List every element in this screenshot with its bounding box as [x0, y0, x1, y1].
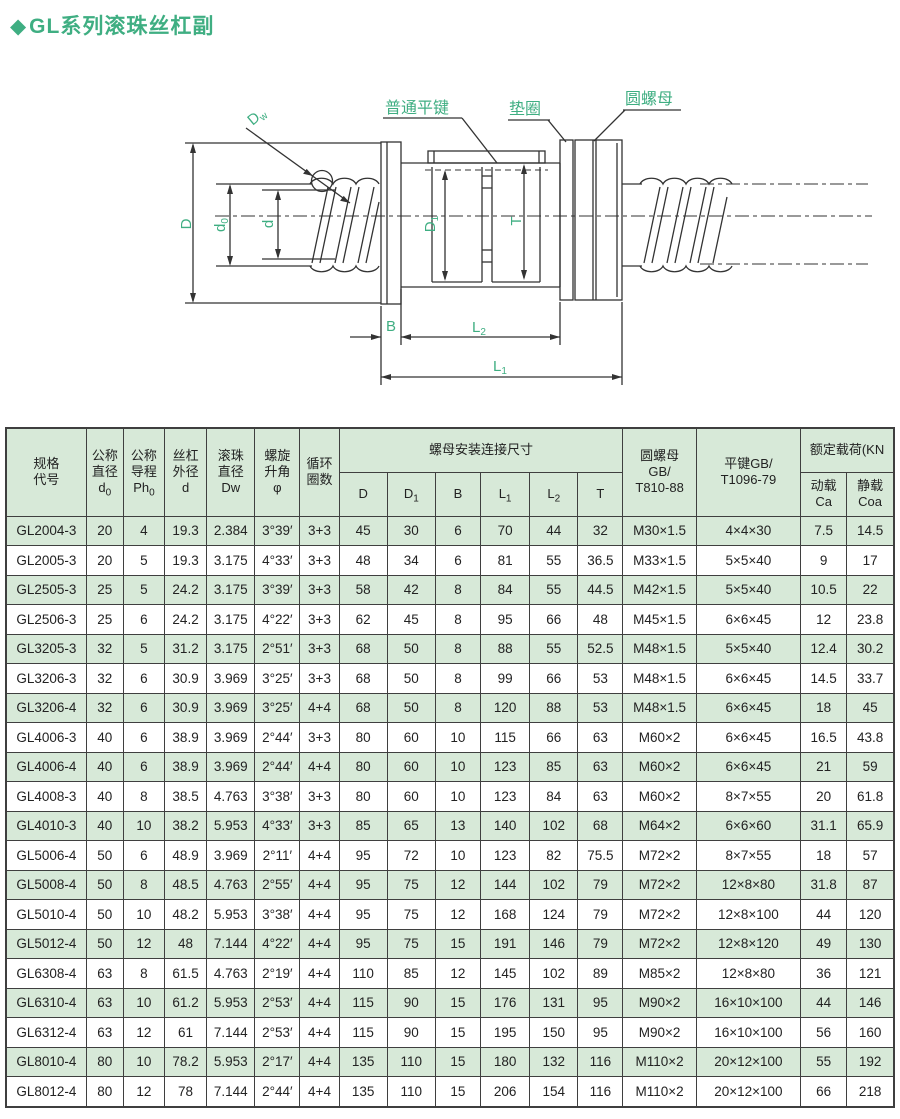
spec-cell: 6×6×45 [696, 752, 800, 782]
col-B: B [435, 472, 480, 516]
spec-table-body: GL2004-320419.32.3843°39′3+345306704432M… [6, 516, 894, 1107]
spec-cell: 53 [578, 664, 623, 694]
spec-cell: 20 [86, 516, 123, 546]
spec-row: GL2004-320419.32.3843°39′3+345306704432M… [6, 516, 894, 546]
spec-cell: 12×8×100 [696, 900, 800, 930]
spec-cell: 63 [86, 988, 123, 1018]
spec-cell: 191 [481, 929, 530, 959]
spec-cell: 61.2 [165, 988, 207, 1018]
spec-cell: GL3205-3 [6, 634, 86, 664]
spec-cell: GL5006-4 [6, 841, 86, 871]
spec-cell: 145 [481, 959, 530, 989]
spec-cell: 25 [86, 605, 123, 635]
spec-cell: 6 [123, 605, 164, 635]
spec-cell: 10 [123, 1047, 164, 1077]
spec-cell: 20 [801, 782, 847, 812]
spec-cell: 61.8 [847, 782, 894, 812]
spec-cell: 8×7×55 [696, 841, 800, 871]
spec-cell: 120 [481, 693, 530, 723]
spec-cell: GL4006-3 [6, 723, 86, 753]
spec-cell: 154 [530, 1077, 578, 1107]
spec-cell: 75 [387, 870, 435, 900]
spec-cell: 110 [387, 1047, 435, 1077]
spec-cell: 8 [435, 605, 480, 635]
col-T: T [578, 472, 623, 516]
spec-row: GL5012-45012487.1444°22′4+49575151911467… [6, 929, 894, 959]
spec-cell: 12 [435, 959, 480, 989]
spec-cell: 95 [481, 605, 530, 635]
spec-cell: 8 [123, 782, 164, 812]
spec-cell: 45 [847, 693, 894, 723]
spec-cell: 44.5 [578, 575, 623, 605]
spec-cell: 12 [123, 1018, 164, 1048]
spec-cell: M72×2 [623, 841, 696, 871]
spec-cell: 180 [481, 1047, 530, 1077]
spec-cell: GL5012-4 [6, 929, 86, 959]
spec-cell: 44 [801, 900, 847, 930]
spec-cell: 80 [339, 782, 387, 812]
spec-cell: 85 [387, 959, 435, 989]
spec-cell: 25 [86, 575, 123, 605]
spec-cell: 50 [387, 634, 435, 664]
spec-cell: 132 [530, 1047, 578, 1077]
dim-label-d: d [260, 220, 277, 228]
spec-row: GL6312-46312617.1442°53′4+41159015195150… [6, 1018, 894, 1048]
spec-cell: 3°25′ [255, 664, 300, 694]
spec-cell: 4+4 [300, 1018, 339, 1048]
spec-cell: 12×8×80 [696, 870, 800, 900]
spec-cell: 123 [481, 752, 530, 782]
spec-cell: 42 [387, 575, 435, 605]
spec-cell: M30×1.5 [623, 516, 696, 546]
spec-row: GL2505-325524.23.1753°39′3+358428845544.… [6, 575, 894, 605]
spec-cell: 5 [123, 575, 164, 605]
spec-row: GL4006-440638.93.9692°44′4+4806010123856… [6, 752, 894, 782]
col-screw-od: 丝杠 外径d [165, 428, 207, 516]
spec-table: 规格 代号 公称 直径d0 公称 导程Ph0 丝杠 外径d 滚珠 直径Dw 螺旋… [5, 427, 895, 1108]
spec-cell: 131 [530, 988, 578, 1018]
spec-cell: 6 [123, 752, 164, 782]
spec-row: GL5008-450848.54.7632°55′4+4957512144102… [6, 870, 894, 900]
spec-cell: 6×6×45 [696, 693, 800, 723]
spec-cell: 5×5×40 [696, 575, 800, 605]
spec-cell: 6×6×60 [696, 811, 800, 841]
spec-cell: 4°22′ [255, 605, 300, 635]
spec-cell: 3.175 [207, 605, 255, 635]
spec-cell: 36 [801, 959, 847, 989]
spec-cell: 20×12×100 [696, 1077, 800, 1107]
spec-cell: 2°11′ [255, 841, 300, 871]
spec-cell: 176 [481, 988, 530, 1018]
spec-cell: GL6312-4 [6, 1018, 86, 1048]
spec-cell: 30.9 [165, 693, 207, 723]
spec-cell: 18 [801, 841, 847, 871]
spec-cell: 52.5 [578, 634, 623, 664]
spec-cell: 50 [86, 870, 123, 900]
spec-cell: 2°55′ [255, 870, 300, 900]
spec-cell: 61 [165, 1018, 207, 1048]
spec-cell: 2.384 [207, 516, 255, 546]
spec-cell: 38.5 [165, 782, 207, 812]
spec-cell: M90×2 [623, 988, 696, 1018]
spec-cell: 63 [86, 959, 123, 989]
spec-cell: 4 [123, 516, 164, 546]
spec-cell: 5.953 [207, 1047, 255, 1077]
spec-cell: 32 [578, 516, 623, 546]
spec-cell: 10 [435, 841, 480, 871]
spec-cell: 8 [435, 664, 480, 694]
spec-cell: 192 [847, 1047, 894, 1077]
spec-cell: 43.8 [847, 723, 894, 753]
spec-cell: 84 [530, 782, 578, 812]
spec-cell: 4+4 [300, 870, 339, 900]
spec-cell: 13 [435, 811, 480, 841]
spec-cell: 32 [86, 693, 123, 723]
spec-row: GL2506-325624.23.1754°22′3+362458956648M… [6, 605, 894, 635]
spec-cell: 33.7 [847, 664, 894, 694]
spec-cell: 95 [578, 1018, 623, 1048]
spec-cell: 38.9 [165, 723, 207, 753]
spec-cell: GL8010-4 [6, 1047, 86, 1077]
spec-cell: 102 [530, 959, 578, 989]
spec-cell: 12×8×120 [696, 929, 800, 959]
spec-cell: 3°25′ [255, 693, 300, 723]
spec-cell: 135 [339, 1077, 387, 1107]
spec-cell: GL3206-3 [6, 664, 86, 694]
spec-cell: 6×6×45 [696, 723, 800, 753]
spec-cell: 3°38′ [255, 900, 300, 930]
spec-cell: 3°38′ [255, 782, 300, 812]
spec-cell: GL6310-4 [6, 988, 86, 1018]
spec-cell: 88 [530, 693, 578, 723]
spec-cell: M48×1.5 [623, 634, 696, 664]
spec-cell: 58 [339, 575, 387, 605]
spec-cell: 12 [435, 900, 480, 930]
spec-cell: 2°51′ [255, 634, 300, 664]
spec-cell: 31.2 [165, 634, 207, 664]
spec-cell: 8 [435, 575, 480, 605]
spec-cell: GL6308-4 [6, 959, 86, 989]
spec-cell: 12 [801, 605, 847, 635]
spec-cell: 150 [530, 1018, 578, 1048]
spec-cell: 5.953 [207, 988, 255, 1018]
spec-cell: 102 [530, 870, 578, 900]
spec-cell: 3.175 [207, 575, 255, 605]
spec-cell: 15 [435, 1077, 480, 1107]
spec-row: GL5010-4501048.25.9533°38′4+495751216812… [6, 900, 894, 930]
spec-cell: 18 [801, 693, 847, 723]
col-group-nut-mount-dims: 螺母安装连接尺寸 [339, 428, 623, 472]
spec-cell: 82 [530, 841, 578, 871]
spec-cell: 95 [339, 929, 387, 959]
spec-cell: 3+3 [300, 546, 339, 576]
spec-cell: 8 [435, 693, 480, 723]
spec-cell: 12 [123, 929, 164, 959]
spec-cell: 123 [481, 841, 530, 871]
spec-cell: 68 [339, 664, 387, 694]
spec-cell: GL4006-4 [6, 752, 86, 782]
spec-cell: 4+4 [300, 752, 339, 782]
catalog-page: ◆GL系列滚珠丝杠副 [0, 0, 900, 1119]
spec-cell: M48×1.5 [623, 693, 696, 723]
spec-cell: M72×2 [623, 870, 696, 900]
spec-cell: 6 [435, 546, 480, 576]
spec-cell: 6 [123, 664, 164, 694]
dim-label-Dw: Dw [244, 104, 271, 131]
spec-cell: 206 [481, 1077, 530, 1107]
spec-cell: 50 [387, 693, 435, 723]
col-ball-diameter: 滚珠 直径Dw [207, 428, 255, 516]
spec-cell: 6 [435, 516, 480, 546]
spec-cell: 5.953 [207, 811, 255, 841]
col-D: D [339, 472, 387, 516]
spec-cell: M85×2 [623, 959, 696, 989]
spec-cell: 124 [530, 900, 578, 930]
spec-cell: 75 [387, 929, 435, 959]
spec-cell: 78 [165, 1077, 207, 1107]
spec-cell: 44 [801, 988, 847, 1018]
spec-cell: 89 [578, 959, 623, 989]
col-nominal-lead: 公称 导程Ph0 [123, 428, 164, 516]
spec-cell: 120 [847, 900, 894, 930]
spec-cell: 5×5×40 [696, 634, 800, 664]
spec-row: GL3205-332531.23.1752°51′3+368508885552.… [6, 634, 894, 664]
spec-cell: 79 [578, 870, 623, 900]
col-spec-code: 规格 代号 [6, 428, 86, 516]
spec-cell: 6×6×45 [696, 664, 800, 694]
spec-cell: 10 [123, 900, 164, 930]
spec-cell: 10 [435, 723, 480, 753]
table-header: 规格 代号 公称 直径d0 公称 导程Ph0 丝杠 外径d 滚珠 直径Dw 螺旋… [6, 428, 894, 516]
spec-cell: 3.175 [207, 634, 255, 664]
spec-cell: 2°17′ [255, 1047, 300, 1077]
spec-cell: 3+3 [300, 664, 339, 694]
spec-cell: 3+3 [300, 634, 339, 664]
spec-row: GL4010-3401038.25.9534°33′3+385651314010… [6, 811, 894, 841]
spec-cell: 63 [86, 1018, 123, 1048]
spec-cell: 68 [339, 693, 387, 723]
spec-cell: 17 [847, 546, 894, 576]
spec-cell: GL4008-3 [6, 782, 86, 812]
spec-cell: M45×1.5 [623, 605, 696, 635]
spec-cell: M64×2 [623, 811, 696, 841]
spec-cell: GL2506-3 [6, 605, 86, 635]
spec-cell: 8 [123, 959, 164, 989]
spec-cell: 4°22′ [255, 929, 300, 959]
spec-cell: 14.5 [801, 664, 847, 694]
spec-cell: 4×4×30 [696, 516, 800, 546]
col-static-load: 静载 Coa [847, 472, 894, 516]
spec-cell: 80 [339, 723, 387, 753]
spec-cell: 32 [86, 664, 123, 694]
ball-screw-diagram: 普通平键 垫圈 圆螺母 D d0 d Dw D1 T B L2 L1 [0, 0, 900, 422]
spec-cell: 66 [530, 664, 578, 694]
spec-cell: 3.969 [207, 752, 255, 782]
spec-cell: 3.175 [207, 546, 255, 576]
spec-cell: 3°39′ [255, 516, 300, 546]
spec-cell: GL5010-4 [6, 900, 86, 930]
spec-cell: 60 [387, 723, 435, 753]
spec-cell: 10 [123, 988, 164, 1018]
spec-cell: 7.144 [207, 1077, 255, 1107]
spec-cell: 48 [578, 605, 623, 635]
spec-cell: 4+4 [300, 1047, 339, 1077]
spec-cell: 12.4 [801, 634, 847, 664]
spec-cell: 218 [847, 1077, 894, 1107]
spec-cell: GL2505-3 [6, 575, 86, 605]
spec-cell: 10.5 [801, 575, 847, 605]
spec-cell: 32 [86, 634, 123, 664]
spec-cell: 85 [530, 752, 578, 782]
spec-cell: 7.144 [207, 929, 255, 959]
spec-cell: 20×12×100 [696, 1047, 800, 1077]
spec-cell: 144 [481, 870, 530, 900]
spec-cell: M42×1.5 [623, 575, 696, 605]
spec-cell: 90 [387, 1018, 435, 1048]
spec-cell: 4+4 [300, 988, 339, 1018]
col-circuits: 循环 圈数 [300, 428, 339, 516]
spec-cell: 10 [435, 782, 480, 812]
col-L1: L1 [481, 472, 530, 516]
spec-cell: 15 [435, 1047, 480, 1077]
spec-cell: 110 [387, 1077, 435, 1107]
spec-cell: 50 [387, 664, 435, 694]
spec-cell: 4°33′ [255, 811, 300, 841]
spec-cell: 3+3 [300, 605, 339, 635]
spec-cell: 99 [481, 664, 530, 694]
spec-cell: 3.969 [207, 723, 255, 753]
dim-label-D1: D1 [422, 215, 441, 232]
spec-cell: 80 [339, 752, 387, 782]
spec-cell: 8 [123, 870, 164, 900]
spec-cell: 30.2 [847, 634, 894, 664]
spec-cell: 48.5 [165, 870, 207, 900]
spec-cell: 66 [801, 1077, 847, 1107]
col-round-nut-std: 圆螺母 GB/ T810-88 [623, 428, 696, 516]
spec-cell: 12×8×80 [696, 959, 800, 989]
spec-cell: 6 [123, 723, 164, 753]
spec-cell: M72×2 [623, 929, 696, 959]
spec-cell: 80 [86, 1077, 123, 1107]
spec-cell: 38.9 [165, 752, 207, 782]
spec-cell: 50 [86, 841, 123, 871]
spec-cell: M110×2 [623, 1077, 696, 1107]
dim-label-B: B [386, 318, 396, 335]
spec-cell: 135 [339, 1047, 387, 1077]
spec-cell: 36.5 [578, 546, 623, 576]
spec-cell: 45 [339, 516, 387, 546]
spec-cell: 48.9 [165, 841, 207, 871]
spec-cell: 30 [387, 516, 435, 546]
spec-cell: 12 [435, 870, 480, 900]
spec-cell: 55 [530, 634, 578, 664]
spec-cell: 168 [481, 900, 530, 930]
spec-cell: 116 [578, 1047, 623, 1077]
spec-cell: 59 [847, 752, 894, 782]
spec-cell: 115 [339, 1018, 387, 1048]
spec-cell: 79 [578, 900, 623, 930]
spec-cell: 78.2 [165, 1047, 207, 1077]
spec-cell: M110×2 [623, 1047, 696, 1077]
spec-cell: 22 [847, 575, 894, 605]
spec-cell: 40 [86, 811, 123, 841]
spec-cell: 14.5 [847, 516, 894, 546]
spec-cell: 45 [387, 605, 435, 635]
spec-cell: 4+4 [300, 841, 339, 871]
spec-cell: 44 [530, 516, 578, 546]
spec-cell: 2°44′ [255, 723, 300, 753]
spec-cell: 63 [578, 723, 623, 753]
spec-cell: 130 [847, 929, 894, 959]
spec-cell: 10 [123, 811, 164, 841]
spec-row: GL4006-340638.93.9692°44′3+3806010115666… [6, 723, 894, 753]
spec-cell: 6 [123, 693, 164, 723]
spec-cell: 15 [435, 988, 480, 1018]
spec-cell: 24.2 [165, 605, 207, 635]
spec-cell: 3+3 [300, 782, 339, 812]
spec-cell: 21 [801, 752, 847, 782]
spec-cell: 48.2 [165, 900, 207, 930]
spec-cell: 4+4 [300, 959, 339, 989]
spec-cell: 3+3 [300, 575, 339, 605]
spec-cell: 146 [530, 929, 578, 959]
spec-cell: 4°33′ [255, 546, 300, 576]
spec-cell: M72×2 [623, 900, 696, 930]
dimension-arrowheads [190, 143, 622, 380]
col-dynamic-load: 动载 Ca [801, 472, 847, 516]
spec-cell: 56 [801, 1018, 847, 1048]
spec-cell: 15 [435, 1018, 480, 1048]
spec-cell: 102 [530, 811, 578, 841]
spec-cell: 19.3 [165, 546, 207, 576]
spec-cell: 5×5×40 [696, 546, 800, 576]
dim-label-L2: L2 [472, 319, 486, 338]
spec-cell: 2°44′ [255, 752, 300, 782]
spec-cell: 55 [530, 546, 578, 576]
spec-cell: 3.969 [207, 841, 255, 871]
spec-cell: 4.763 [207, 959, 255, 989]
spec-cell: 5.953 [207, 900, 255, 930]
spec-cell: 95 [339, 900, 387, 930]
spec-cell: GL4010-3 [6, 811, 86, 841]
spec-cell: 31.1 [801, 811, 847, 841]
spec-cell: 85 [339, 811, 387, 841]
spec-cell: 95 [578, 988, 623, 1018]
spec-row: GL8010-4801078.25.9532°17′4+413511015180… [6, 1047, 894, 1077]
spec-cell: 68 [578, 811, 623, 841]
spec-cell: 116 [578, 1077, 623, 1107]
spec-cell: 40 [86, 782, 123, 812]
spec-cell: 66 [530, 605, 578, 635]
callout-washer: 垫圈 [509, 100, 541, 118]
dim-label-T: T [508, 216, 525, 225]
dim-label-d0: d0 [212, 218, 231, 232]
spec-cell: 2°44′ [255, 1077, 300, 1107]
spec-cell: 146 [847, 988, 894, 1018]
spec-cell: 50 [86, 900, 123, 930]
spec-cell: M48×1.5 [623, 664, 696, 694]
spec-cell: 48 [165, 929, 207, 959]
spec-cell: 66 [530, 723, 578, 753]
spec-cell: GL5008-4 [6, 870, 86, 900]
spec-cell: 20 [86, 546, 123, 576]
col-helix-angle: 螺旋 升角φ [255, 428, 300, 516]
spec-cell: 9 [801, 546, 847, 576]
spec-cell: 30.9 [165, 664, 207, 694]
spec-cell: 4.763 [207, 782, 255, 812]
dim-label-D: D [178, 218, 195, 229]
spec-cell: 110 [339, 959, 387, 989]
